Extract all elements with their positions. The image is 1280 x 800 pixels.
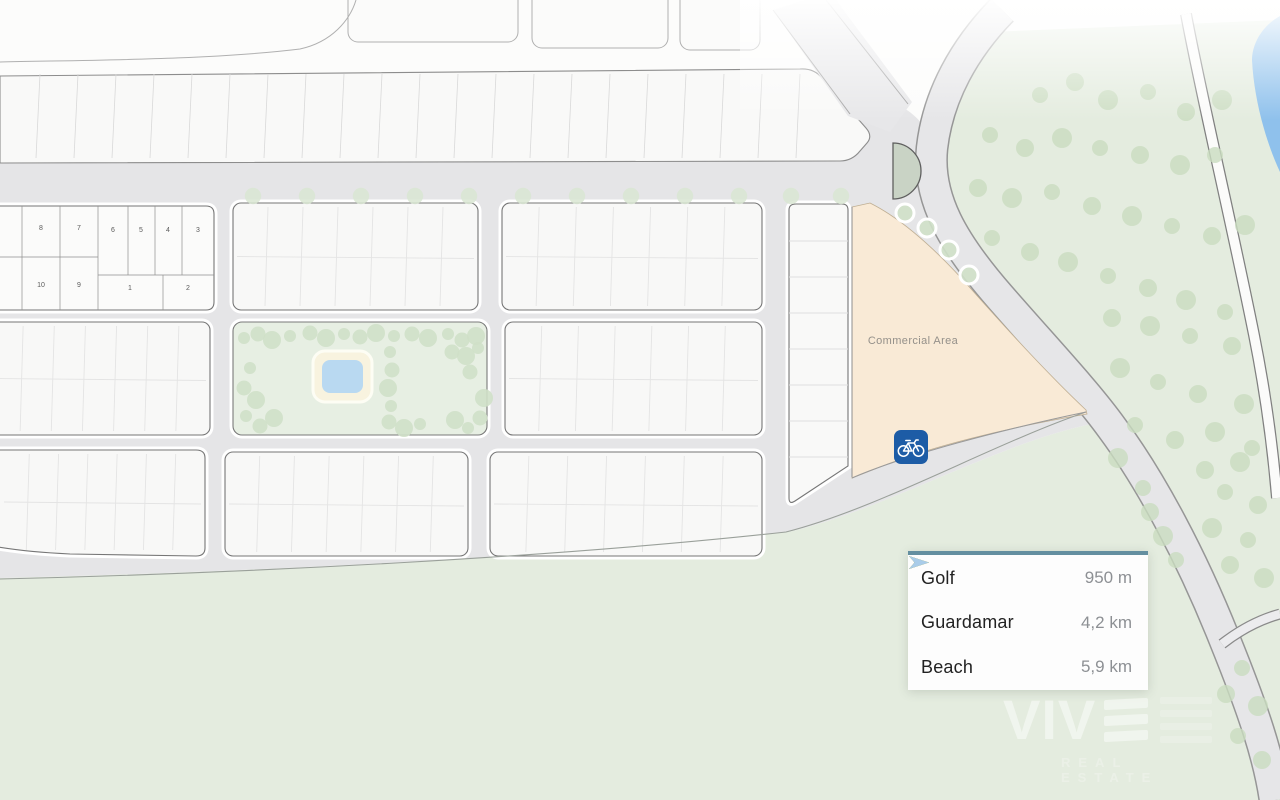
legend-distance: 950 m — [1085, 568, 1132, 588]
svg-text:9: 9 — [77, 282, 81, 289]
legend-label: Guardamar — [921, 612, 1014, 633]
brand-tagline: REAL ESTATE — [1061, 755, 1233, 785]
legend-label: Beach — [921, 657, 973, 678]
brand-e-bars-icon — [1104, 696, 1148, 744]
brand-watermark: VIV REAL ESTATE — [1003, 694, 1233, 785]
svg-text:3: 3 — [196, 227, 200, 234]
svg-text:7: 7 — [77, 225, 81, 232]
strip-block — [789, 204, 848, 502]
top-strip-plots — [0, 69, 870, 163]
commercial-area-label: Commercial Area — [868, 335, 959, 347]
legend-distance: 5,9 km — [1081, 657, 1132, 677]
park — [233, 322, 493, 437]
numbered-plots-block: 8 7 6 5 4 3 10 9 1 2 — [0, 206, 214, 310]
bicycle-lane-icon — [894, 430, 928, 464]
pool — [322, 360, 363, 393]
legend-item-guardamar: Guardamar 4,2 km — [908, 601, 1148, 644]
brand-ghost-bars-icon — [1160, 694, 1212, 746]
site-plan-map: Commercial Area 8 7 6 5 4 — [0, 0, 1280, 800]
beach-arrow-icon — [908, 555, 930, 570]
svg-text:2: 2 — [186, 285, 190, 292]
legend-item-golf: Golf 950 m — [908, 557, 1148, 600]
legend-item-beach: Beach 5,9 km — [908, 646, 1148, 689]
legend-card: Golf 950 m Guardamar 4,2 km Beach 5,9 km — [908, 551, 1148, 690]
brand-name: VIV — [1003, 698, 1096, 743]
legend-distance: 4,2 km — [1081, 613, 1132, 633]
top-fade — [740, 0, 1280, 120]
svg-text:10: 10 — [37, 282, 45, 289]
svg-text:1: 1 — [128, 285, 132, 292]
svg-text:4: 4 — [166, 227, 170, 234]
svg-text:6: 6 — [111, 227, 115, 234]
legend-label: Golf — [921, 568, 955, 589]
svg-text:5: 5 — [139, 227, 143, 234]
svg-text:8: 8 — [39, 225, 43, 232]
